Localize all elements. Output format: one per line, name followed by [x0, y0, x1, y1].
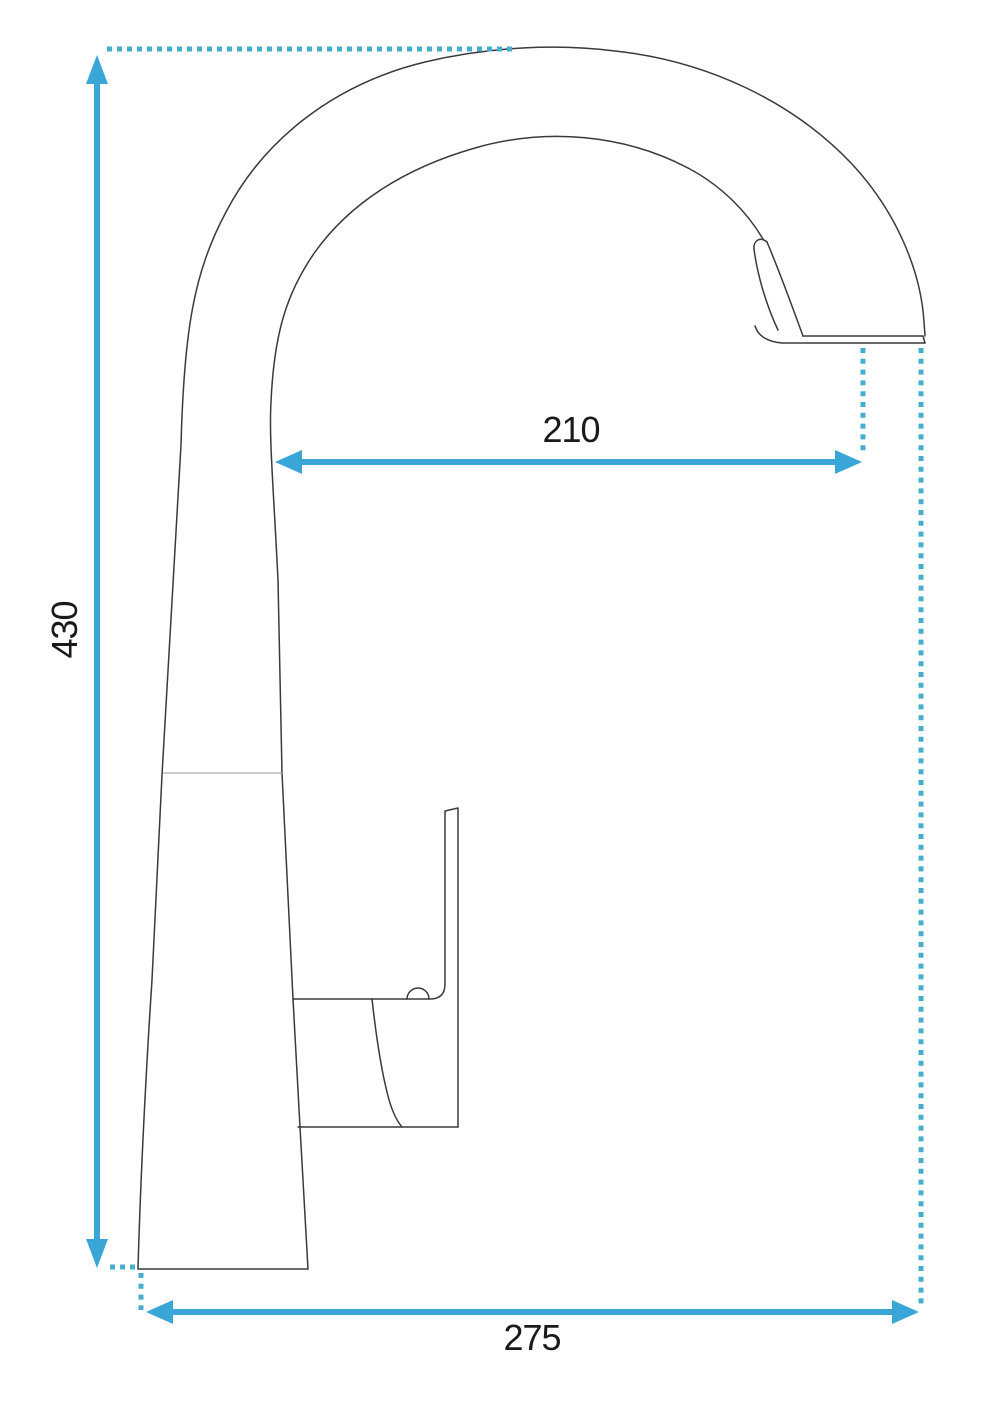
faucet-outer-profile [138, 47, 925, 1269]
dimension-height: 430 [44, 49, 512, 1268]
dimension-overall-depth: 275 [110, 348, 921, 1358]
spout-bottom-upper-line [803, 336, 925, 343]
faucet-inner-profile [270, 136, 763, 1269]
handle-lever [293, 808, 458, 1127]
arrowhead-up [86, 55, 108, 84]
spray-head-seam-right [767, 242, 803, 336]
arrowhead-down [86, 1239, 108, 1268]
arrowhead-left [146, 1300, 173, 1324]
spray-head-seam-cap [754, 239, 767, 249]
drawing-canvas: 430 210 275 [0, 0, 985, 1401]
dimension-spout-reach-label: 210 [542, 409, 599, 450]
faucet-dimension-diagram: 430 210 275 [0, 0, 985, 1401]
spout-bottom-lower-line [755, 326, 925, 343]
dimension-spout-reach: 210 [275, 348, 863, 474]
arrowhead-right [892, 1300, 919, 1324]
arrowhead-right [835, 450, 862, 474]
dimension-overall-depth-label: 275 [503, 1317, 560, 1358]
handle-pin-bump [407, 988, 429, 999]
faucet-outline [138, 47, 925, 1269]
handle-base-seam [372, 999, 402, 1127]
dimension-height-label: 430 [44, 601, 85, 658]
arrowhead-left [275, 450, 302, 474]
